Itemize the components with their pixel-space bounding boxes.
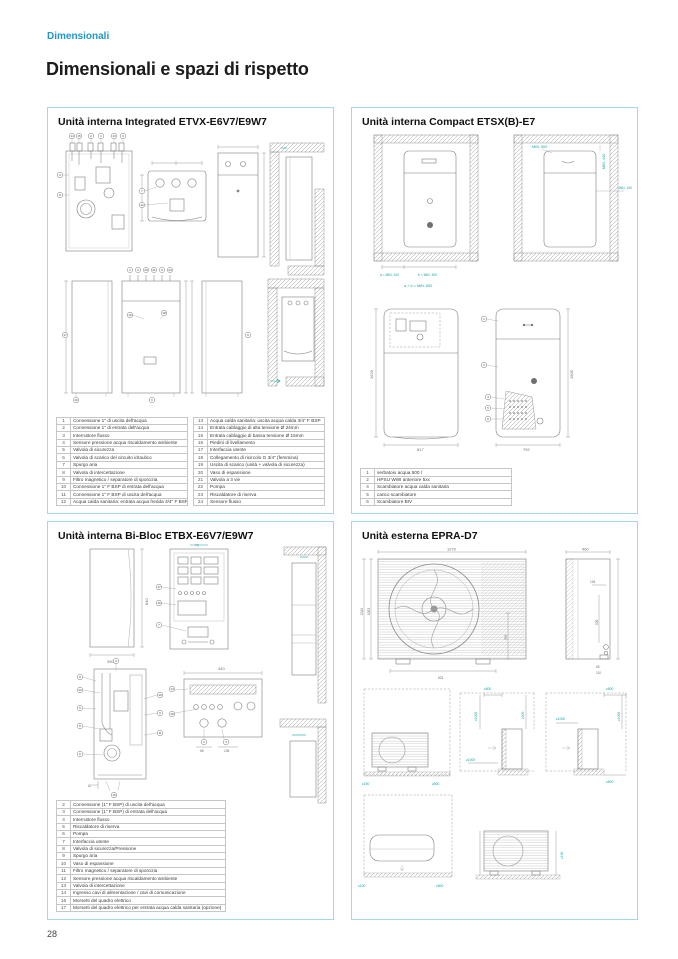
- panel-compact-title: Unità interna Compact ETSX(B)-E7: [352, 108, 637, 129]
- table-row: 22Pompa: [194, 483, 325, 490]
- table-row: 8Valvola di intercettazione: [57, 469, 188, 476]
- table-row: 18Collegamento di ricircolo G 3/4" (femm…: [194, 454, 325, 461]
- legend-number: 10: [57, 860, 71, 867]
- table-row: 13Valvola di intercettazione: [57, 882, 226, 889]
- clr-2d: ≥1000: [466, 758, 475, 762]
- clr-3c: ≥1000: [556, 717, 565, 721]
- legend-text: Pompa: [208, 483, 325, 490]
- bibloc-drawings: 840 390 79 440 68 108 62 17 16 7 4 9 12 …: [52, 543, 329, 807]
- legend-text: Interruttore flusso: [71, 816, 226, 823]
- legend-number: 21: [194, 476, 208, 483]
- legend-number: 17: [57, 904, 71, 911]
- panel-esterna: Unità esterna EPRA-D7: [351, 521, 638, 920]
- legend-number: 14: [194, 424, 208, 431]
- legend-number: 2: [57, 801, 71, 808]
- legend-number: 24: [194, 498, 208, 505]
- integrated-top-view: [140, 161, 206, 221]
- legend-text: Scambiatore acqua calda sanitaria: [375, 483, 512, 490]
- table-row: 7Interfaccia utente: [57, 838, 226, 845]
- table-row: 5Valvola di sicurezza: [57, 447, 188, 454]
- legend-text: Interfaccia utente: [208, 447, 325, 454]
- svg-text:16: 16: [74, 398, 78, 402]
- legend-text: Valvola di sicurezza: [71, 447, 188, 454]
- compact-legend: 1serbatoio acqua 500 l2HPSU WWI anterior…: [360, 468, 512, 506]
- integrated-drawings: 14 15 2 1 13 3 4 8 7 12 1 2 20 21 3 24 1…: [52, 129, 329, 407]
- table-row: 9Filtro magnetico / separatore di sporci…: [57, 476, 188, 483]
- legend-number: 12: [57, 875, 71, 882]
- legend-number: 5: [57, 823, 71, 830]
- dim-526: 526: [595, 619, 599, 625]
- legend-number: 22: [194, 483, 208, 490]
- svg-text:14: 14: [170, 687, 174, 691]
- dim-height-2: 1905: [569, 369, 574, 379]
- table-row: 5carico scambiatore: [361, 491, 512, 498]
- dim-min500: MIN. 500: [532, 145, 547, 149]
- legend-number: 9: [57, 853, 71, 860]
- dim-194: 194: [590, 580, 596, 584]
- dim-ab: a + b = MIN. 600: [404, 284, 432, 288]
- esterna-front-view: [362, 550, 526, 673]
- breadcrumb[interactable]: Dimensionali: [47, 31, 109, 42]
- table-row: 2HPSU WWI anteriore 5xx: [361, 476, 512, 483]
- legend-text: Connessione (1" F BSP) di entrata dell'a…: [71, 808, 226, 815]
- esterna-clearance-4: [364, 795, 452, 877]
- compact-drawings: MIN. 500 MIN. 440 MIN. 100 a = MIN. 100 …: [356, 129, 633, 451]
- dim-65: 65: [596, 665, 600, 669]
- bibloc-clearance-side-2: [280, 719, 326, 803]
- bibloc-legend: 2Connessione (1" F BSP) di uscita dell'a…: [56, 800, 226, 912]
- bibloc-side-view: [90, 549, 144, 657]
- legend-number: 2: [361, 476, 375, 483]
- dim-width-1: 817: [417, 447, 424, 451]
- compact-tank-side-view: [374, 309, 458, 447]
- svg-text:12: 12: [140, 203, 144, 207]
- table-row: 14Entrata cablaggio di alta tensione Ø 2…: [194, 424, 325, 431]
- legend-number: 7: [57, 838, 71, 845]
- table-row: 4Sensore pressione acqua riscaldamento a…: [57, 439, 188, 446]
- legend-number: 1: [57, 417, 71, 424]
- clr-4a: ≥100: [358, 884, 365, 888]
- legend-number: 13: [57, 882, 71, 889]
- table-row: 17Interfaccia utente: [194, 447, 325, 454]
- integrated-cabinet-views: [64, 275, 242, 397]
- table-row: 6Scambiatore BIV: [361, 498, 512, 505]
- legend-number: 12: [57, 498, 71, 505]
- clr-1a: ≥150: [362, 782, 369, 786]
- clr-2c: ≥300: [521, 712, 525, 719]
- integrated-clearance-side: [270, 143, 324, 275]
- clr-3a: ≥500: [606, 687, 613, 691]
- table-row: 11Filtro magnetico / separatore di sporc…: [57, 867, 226, 874]
- legend-text: Valvola a 3 vie: [208, 476, 325, 483]
- bibloc-electrical-view: [162, 545, 228, 649]
- legend-number: 6: [361, 498, 375, 505]
- legend-text: carico scambiatore: [375, 491, 512, 498]
- legend-text: Valvola di intercettazione: [71, 882, 226, 889]
- legend-text: Entrata cablaggio di bassa tensione Ø 15…: [208, 432, 325, 439]
- compact-tank-front-view: [487, 309, 570, 447]
- legend-number: 19: [194, 461, 208, 468]
- bibloc-clearance-side: [284, 547, 326, 703]
- legend-text: Riscaldatore di riserva: [208, 491, 325, 498]
- legend-number: 1: [361, 469, 375, 476]
- legend-number: 14: [57, 889, 71, 896]
- table-row: 1Connessione 1" di uscita dell'acqua: [57, 417, 188, 424]
- table-row: 20Vaso di espansione: [194, 469, 325, 476]
- svg-text:20: 20: [144, 268, 148, 272]
- legend-text: Valvola di scarico del circuito idraulic…: [71, 454, 188, 461]
- dim-62: 62: [88, 784, 92, 788]
- esterna-drawings: 1270 1019 1003 823 376 460 194 526 65 11…: [356, 543, 633, 907]
- esterna-clearance-5: [476, 831, 560, 879]
- panel-bibloc: Unità interna Bi-Bloc ETBX-E6V7/E9W7: [47, 521, 334, 920]
- legend-text: Scambiatore BIV: [375, 498, 512, 505]
- legend-number: 2: [57, 424, 71, 431]
- legend-number: 10: [57, 483, 71, 490]
- table-row: 24Sensore flusso: [194, 498, 325, 505]
- dim-width-2: 440: [218, 666, 225, 671]
- dim-min440: MIN. 440: [602, 154, 606, 169]
- compact-clearance-side: [514, 135, 624, 261]
- legend-text: Vaso di espansione: [71, 860, 226, 867]
- table-row: 8Valvola di sicurezza/Pressione: [57, 845, 226, 852]
- clr-2a: ≥500: [484, 687, 491, 691]
- legend-text: Morsetti del quadro elettrico per entrat…: [71, 904, 226, 911]
- dim-width-2: 792: [523, 447, 530, 451]
- table-row: 19Uscita di scarico (unità + valvola di …: [194, 461, 325, 468]
- legend-number: 3: [57, 808, 71, 815]
- dim-min100: MIN. 100: [619, 186, 633, 190]
- dim-460: 460: [582, 547, 589, 552]
- clr-3d: ≥500: [606, 780, 613, 784]
- table-row: 4Interruttore flusso: [57, 816, 226, 823]
- clr-2b: ≥1000: [474, 712, 478, 721]
- table-row: 1serbatoio acqua 500 l: [361, 469, 512, 476]
- dim-a: a = MIN. 100: [380, 273, 399, 277]
- legend-text: Interfaccia utente: [71, 838, 226, 845]
- dim-b: b = MIN. 300: [418, 273, 437, 277]
- legend-text: Pompa: [71, 830, 226, 837]
- legend-number: 8: [57, 845, 71, 852]
- panel-integrated: Unità interna Integrated ETVX-E6V7/E9W7: [47, 107, 334, 514]
- legend-number: 18: [194, 454, 208, 461]
- table-row: 21Valvola a 3 vie: [194, 476, 325, 483]
- legend-text: Acqua calda sanitaria: entrata acqua fre…: [71, 498, 188, 505]
- esterna-clearance-1: [364, 689, 450, 776]
- page-number: 28: [47, 929, 57, 939]
- table-row: 14Ingresso cavi di alimentazione / cavi …: [57, 889, 226, 896]
- panel-bibloc-title: Unità interna Bi-Bloc ETBX-E6V7/E9W7: [48, 522, 333, 543]
- compact-clearance-front: [374, 135, 478, 269]
- dim-1270: 1270: [447, 547, 457, 552]
- table-row: 5Riscaldatore di riserva: [57, 823, 226, 830]
- integrated-legend: 1Connessione 1" di uscita dell'acqua2Con…: [56, 417, 325, 507]
- legend-number: 5: [361, 491, 375, 498]
- svg-text:24: 24: [168, 268, 172, 272]
- legend-number: 6: [57, 454, 71, 461]
- legend-number: 16: [57, 897, 71, 904]
- table-row: 16Morsetti del quadro elettrico: [57, 897, 226, 904]
- legend-number: 17: [194, 447, 208, 454]
- bibloc-bottom-view: [175, 671, 262, 747]
- dim-height: 840: [144, 598, 149, 605]
- legend-number: 15: [194, 432, 208, 439]
- legend-text: Connessione 1" di entrata dell'acqua: [71, 424, 188, 431]
- legend-number: 4: [57, 439, 71, 446]
- legend-text: Sensore flusso: [208, 498, 325, 505]
- legend-number: 20: [194, 469, 208, 476]
- legend-text: Filtro magnetico / separatore di sporciz…: [71, 867, 226, 874]
- legend-text: Acqua calda sanitaria: uscita acqua cald…: [208, 417, 325, 424]
- dim-823: 823: [438, 676, 444, 680]
- legend-text: Collegamento di ricircolo G 3/4" (femmin…: [208, 454, 325, 461]
- dim-108: 108: [224, 749, 230, 753]
- legend-number: 7: [57, 461, 71, 468]
- legend-text: Ingresso cavi di alimentazione / cavi di…: [71, 889, 226, 896]
- legend-number: 5: [57, 447, 71, 454]
- legend-text: Connessione (1" F BSP) di uscita dell'ac…: [71, 801, 226, 808]
- svg-text:18: 18: [170, 712, 174, 716]
- legend-text: serbatoio acqua 500 l: [375, 469, 512, 476]
- legend-text: Connessione 1" F BSP di uscita dell'acqu…: [71, 491, 188, 498]
- dim-376: 376: [504, 634, 508, 640]
- legend-number: 6: [57, 830, 71, 837]
- svg-text:10: 10: [158, 693, 162, 697]
- clr-3b: ≥1000: [617, 712, 621, 721]
- svg-text:15: 15: [112, 793, 116, 797]
- dim-1003: 1003: [367, 608, 371, 615]
- dim-height-1: 1626: [369, 369, 374, 379]
- bibloc-legend-table: 2Connessione (1" F BSP) di uscita dell'a…: [56, 800, 226, 912]
- compact-legend-table: 1serbatoio acqua 500 l2HPSU WWI anterior…: [360, 468, 512, 506]
- table-row: 17Morsetti del quadro elettrico per entr…: [57, 904, 226, 911]
- panel-esterna-title: Unità esterna EPRA-D7: [352, 522, 637, 543]
- legend-number: 16: [194, 439, 208, 446]
- legend-number: 3: [57, 432, 71, 439]
- esterna-clearance-2: [460, 693, 534, 775]
- clr-5a: ≥150: [560, 852, 564, 859]
- legend-text: Uscita di scarico (unità + valvola di si…: [208, 461, 325, 468]
- table-row: 13Acqua calda sanitaria: uscita acqua ca…: [194, 417, 325, 424]
- dim-top: 79: [195, 543, 199, 547]
- integrated-legend-table-right: 13Acqua calda sanitaria: uscita acqua ca…: [193, 417, 325, 507]
- legend-number: 11: [57, 867, 71, 874]
- svg-text:16: 16: [157, 601, 161, 605]
- table-row: 11Connessione 1" F BSP di uscita dell'ac…: [57, 491, 188, 498]
- dim-1019: 1019: [360, 608, 364, 615]
- legend-text: Piedini di livellamento: [208, 439, 325, 446]
- svg-text:14: 14: [70, 134, 74, 138]
- page-title: Dimensionali e spazi di rispetto: [46, 59, 309, 80]
- legend-number: 4: [361, 483, 375, 490]
- integrated-clearance-top: [268, 279, 324, 386]
- legend-text: Interruttore flusso: [71, 432, 188, 439]
- esterna-side-view: [566, 550, 620, 659]
- legend-number: 11: [57, 491, 71, 498]
- legend-text: Valvola di sicurezza/Pressione: [71, 845, 226, 852]
- integrated-front-view: [218, 145, 266, 257]
- table-row: 3Connessione (1" F BSP) di entrata dell'…: [57, 808, 226, 815]
- legend-text: Riscaldatore di riserva: [71, 823, 226, 830]
- table-row: 9Spurgo aria: [57, 853, 226, 860]
- table-row: 7Spurgo aria: [57, 461, 188, 468]
- table-row: 12Acqua calda sanitaria: entrata acqua f…: [57, 498, 188, 505]
- table-row: 2Connessione 1" di entrata dell'acqua: [57, 424, 188, 431]
- svg-text:18: 18: [162, 311, 166, 315]
- dim-110: 110: [596, 671, 601, 675]
- dim-68: 68: [200, 749, 204, 753]
- svg-text:13: 13: [112, 134, 116, 138]
- legend-text: Sensore pressione acqua riscaldamento am…: [71, 439, 188, 446]
- legend-text: Filtro magnetico / separatore di sporciz…: [71, 476, 188, 483]
- table-row: 12Sensore pressione acqua riscaldamento …: [57, 875, 226, 882]
- legend-text: HPSU WWI anteriore 5xx: [375, 476, 512, 483]
- integrated-legend-table-left: 1Connessione 1" di uscita dell'acqua2Con…: [56, 417, 188, 507]
- svg-text:12: 12: [78, 688, 82, 692]
- legend-text: Connessione 1" di uscita dell'acqua: [71, 417, 188, 424]
- compact-callouts: 1 3 4 5 6: [481, 316, 491, 422]
- panel-compact: Unità interna Compact ETSX(B)-E7: [351, 107, 638, 514]
- panel-integrated-title: Unità interna Integrated ETVX-E6V7/E9W7: [48, 108, 333, 129]
- table-row: 23Riscaldatore di riserva: [194, 491, 325, 498]
- svg-text:15: 15: [77, 134, 81, 138]
- legend-text: Sensore pressione acqua riscaldamento am…: [71, 875, 226, 882]
- table-row: 15Entrata cablaggio di bassa tensione Ø …: [194, 432, 325, 439]
- legend-text: Entrata cablaggio di alta tensione Ø 24m…: [208, 424, 325, 431]
- svg-text:17: 17: [63, 333, 67, 337]
- svg-text:21: 21: [152, 268, 156, 272]
- legend-text: Spurgo aria: [71, 853, 226, 860]
- table-row: 2Connessione (1" F BSP) di uscita dell'a…: [57, 801, 226, 808]
- integrated-internal-view: [63, 139, 132, 251]
- table-row: 6Valvola di scarico del circuito idrauli…: [57, 454, 188, 461]
- legend-number: 8: [57, 469, 71, 476]
- legend-number: 23: [194, 491, 208, 498]
- table-row: 10Connessione 1" F BSP di entrata dell'a…: [57, 483, 188, 490]
- legend-number: 4: [57, 816, 71, 823]
- table-row: 16Piedini di livellamento: [194, 439, 325, 446]
- svg-text:11: 11: [158, 731, 161, 735]
- legend-number: 9: [57, 476, 71, 483]
- table-row: 4Scambiatore acqua calda sanitaria: [361, 483, 512, 490]
- clr-4b: ≥500: [436, 884, 443, 888]
- legend-text: Spurgo aria: [71, 461, 188, 468]
- table-row: 10Vaso di espansione: [57, 860, 226, 867]
- clr-1b: ≥500: [432, 782, 439, 786]
- legend-number: 13: [194, 417, 208, 424]
- esterna-clearance-3: [546, 693, 626, 775]
- legend-text: Morsetti del quadro elettrico: [71, 897, 226, 904]
- svg-text:19: 19: [128, 313, 132, 317]
- table-row: 6Pompa: [57, 830, 226, 837]
- legend-text: Vaso di espansione: [208, 469, 325, 476]
- bibloc-hydraulic-view: [83, 664, 157, 791]
- legend-text: Valvola di intercettazione: [71, 469, 188, 476]
- svg-text:17: 17: [157, 585, 161, 589]
- legend-text: Connessione 1" F BSP di entrata dell'acq…: [71, 483, 188, 490]
- table-row: 3Interruttore flusso: [57, 432, 188, 439]
